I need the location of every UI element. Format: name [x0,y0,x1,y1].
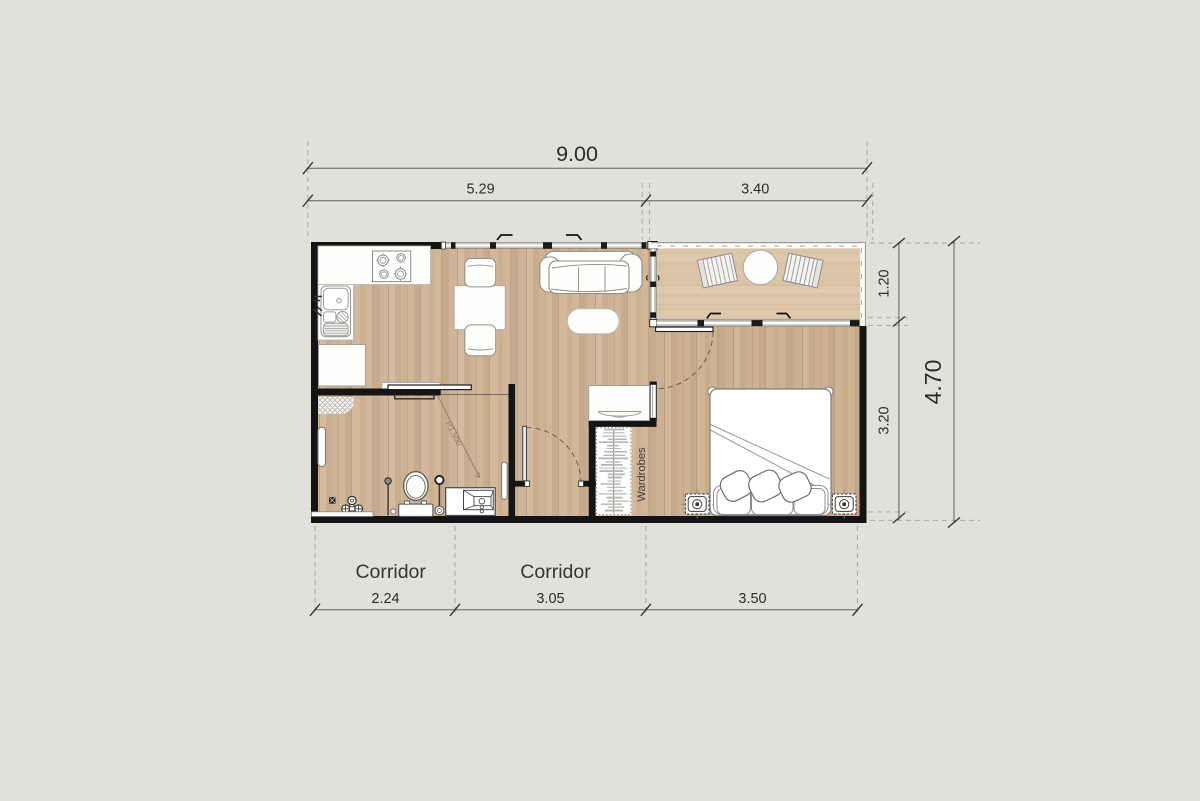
svg-text:5.29: 5.29 [466,182,494,198]
svg-text:3.50: 3.50 [738,591,766,607]
svg-text:3.05: 3.05 [536,591,564,607]
svg-text:Corridor: Corridor [355,561,426,583]
svg-text:Corridor: Corridor [520,561,591,583]
svg-text:2.24: 2.24 [371,591,399,607]
svg-text:1.20: 1.20 [877,269,893,297]
svg-text:Wardrobes: Wardrobes [636,447,648,502]
svg-text:3.40: 3.40 [741,182,769,198]
svg-text:3.20: 3.20 [877,406,893,434]
svg-text:9.00: 9.00 [556,142,598,166]
svg-text:4.70: 4.70 [920,360,946,405]
